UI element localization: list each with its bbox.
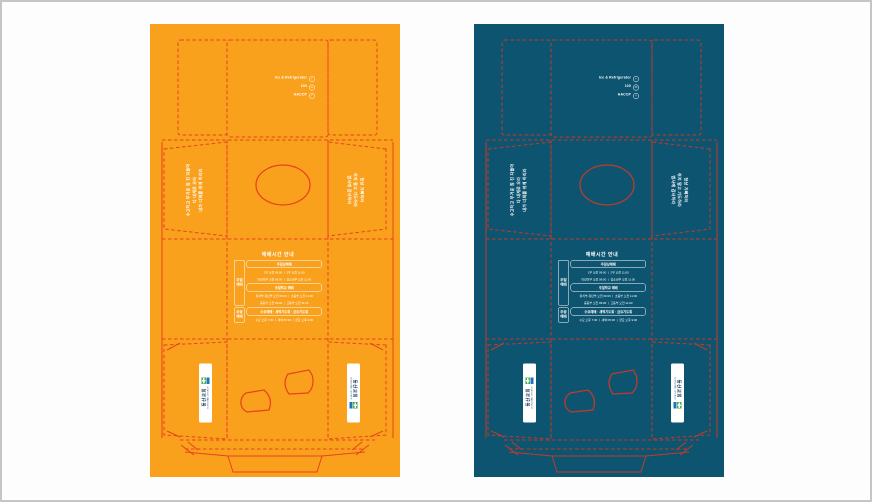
hatch-mark [167, 343, 180, 350]
logo-sub-text: DONGSAN CHURCH [207, 386, 209, 408]
note-line: Ice & Refrigerator+ [275, 76, 315, 82]
glue-flap-notch [680, 445, 693, 455]
weekday-worship-group: 주중예배 수요예배 · 새벽기도회 · 금요기도회 수요 오후 7:30 ㅣ 새… [558, 308, 646, 323]
group-label: 주중예배 [558, 308, 569, 323]
row-header: 주일학교 예배 [571, 284, 647, 292]
church-logo-right: 동산교회DONGSAN CHURCH [671, 363, 685, 423]
note-line: Ice & Refrigerator+ [599, 76, 639, 82]
logo-main-text: 동산교회 [676, 379, 681, 398]
row-header: 수요예배 · 새벽기도회 · 금요기도회 [247, 308, 323, 316]
row-line: 중등부 오전 09:00 ㅣ 고등부 오전 11:00 [571, 300, 647, 306]
side-verse-right: 항상 기뻐하라쉬지 말고 기도하라범사에 감사하라 [318, 148, 393, 233]
sunday-worship-group: 주일예배 주일낮예배 1부 오전 09:00 ㅣ 2부 오전 11:00 어린이… [558, 260, 646, 306]
thumb-cutout-left [565, 390, 595, 412]
row-line: 중등부 오전 09:00 ㅣ 고등부 오전 11:00 [247, 300, 323, 306]
oval-window-cutline [256, 165, 310, 205]
row-line: 어린이부 오전 09:00 ㅣ 청소년부 오전 11:00 [571, 277, 647, 283]
side-verse-right: 항상 기뻐하라쉬지 말고 기도하라범사에 감사하라 [642, 148, 717, 233]
row-line: 어린이부 오전 09:00 ㅣ 청소년부 오전 11:00 [247, 277, 323, 283]
logo-sub-text: DONGSAN CHURCH [674, 378, 676, 400]
thumb-cutout-left [241, 390, 271, 412]
note-line: HACCP✓ [599, 93, 639, 99]
tuck-tab-outline [228, 456, 322, 472]
hatch-mark [370, 343, 383, 350]
weekday-worship-group: 주중예배 수요예배 · 새벽기도회 · 금요기도회 수요 오후 7:30 ㅣ 새… [234, 308, 322, 323]
table-title: 예배시간 안내 [558, 250, 646, 258]
cert-circle-icon: + [633, 76, 639, 82]
church-cross-icon [349, 402, 357, 409]
row-header: 주일낮예배 [247, 260, 323, 268]
group-label: 주일예배 [234, 260, 245, 306]
row-line: 유치부·유년부 오전 09:00 ㅣ 초등부 오전 11:00 [571, 293, 647, 299]
note-line: 100% [275, 85, 315, 91]
cert-circle-icon: % [633, 85, 639, 91]
table-title: 예배시간 안내 [234, 250, 322, 258]
hatch-mark [491, 431, 504, 437]
row-header: 수요예배 · 새벽기도회 · 금요기도회 [571, 308, 647, 316]
glue-flap-notch [505, 445, 518, 455]
hatch-mark [694, 343, 707, 350]
logo-main-text: 동산교회 [352, 379, 357, 398]
cert-circle-icon: % [309, 85, 315, 91]
bottom-side-flap-outline [164, 342, 227, 439]
thumb-cutout-right [285, 370, 313, 394]
side-verse-left: 수고하고 무거운 짐 진 자들아다 내게로 오라내가 너희를 쉬게 하리라 [158, 148, 233, 233]
group-label: 주일예배 [558, 260, 569, 306]
top-left-flap-outline [502, 40, 551, 135]
proof-sheet: Ice & Refrigerator+ 100% HACCP✓ 수고하고 무거운… [2, 2, 870, 500]
dieline-panel-orange: Ice & Refrigerator+ 100% HACCP✓ 수고하고 무거운… [150, 24, 400, 477]
hatch-mark [370, 431, 383, 437]
logo-sub-text: DONGSAN CHURCH [531, 386, 533, 408]
cert-circle-icon: + [309, 76, 315, 82]
row-line: 1부 오전 09:00 ㅣ 2부 오전 11:00 [247, 270, 323, 276]
glue-flap-notch [181, 445, 194, 455]
note-line: 100% [599, 85, 639, 91]
church-logo-left: 동산교회DONGSAN CHURCH [523, 363, 537, 423]
church-cross-icon [525, 378, 533, 385]
side-verse-left: 수고하고 무거운 짐 진 자들아다 내게로 오라내가 너희를 쉬게 하리라 [482, 148, 557, 233]
tuck-cut-line [185, 452, 365, 456]
row-line: 수요 오후 7:30 ㅣ 새벽 05:00 ㅣ 금요 오후 9:00 [247, 317, 323, 323]
logo-sub-text: DONGSAN CHURCH [350, 378, 352, 400]
worship-time-table: 예배시간 안내 주일예배 주일낮예배 1부 오전 09:00 ㅣ 2부 오전 1… [234, 250, 322, 323]
thumb-cutout-right [609, 370, 637, 394]
hatch-mark [167, 431, 180, 437]
cert-circle-icon: ✓ [309, 93, 315, 99]
hatch-mark [694, 431, 707, 437]
church-cross-icon [673, 402, 681, 409]
tuck-cut-line [509, 452, 689, 456]
oval-window-cutline [580, 165, 634, 205]
row-line: 수요 오후 7:30 ㅣ 새벽 05:00 ㅣ 금요 오후 9:00 [571, 317, 647, 323]
note-line: HACCP✓ [275, 93, 315, 99]
church-logo-left: 동산교회DONGSAN CHURCH [199, 363, 213, 423]
worship-time-table: 예배시간 안내 주일예배 주일낮예배 1부 오전 09:00 ㅣ 2부 오전 1… [558, 250, 646, 323]
church-cross-icon [201, 378, 209, 385]
top-right-flap-outline [652, 40, 701, 135]
top-left-flap-outline [178, 40, 227, 135]
certification-notes: Ice & Refrigerator+ 100% HACCP✓ [275, 76, 315, 102]
certification-notes: Ice & Refrigerator+ 100% HACCP✓ [599, 76, 639, 102]
row-line: 1부 오전 09:00 ㅣ 2부 오전 11:00 [571, 270, 647, 276]
row-header: 주일낮예배 [571, 260, 647, 268]
sunday-worship-group: 주일예배 주일낮예배 1부 오전 09:00 ㅣ 2부 오전 11:00 어린이… [234, 260, 322, 306]
dieline-panel-teal: Ice & Refrigerator+ 100% HACCP✓ 수고하고 무거운… [474, 24, 724, 477]
bottom-side-flap-outline [488, 342, 551, 439]
church-logo-right: 동산교회DONGSAN CHURCH [347, 363, 361, 423]
top-right-flap-outline [328, 40, 377, 135]
glue-flap-notch [356, 445, 369, 455]
row-header: 주일학교 예배 [247, 284, 323, 292]
row-line: 유치부·유년부 오전 09:00 ㅣ 초등부 오전 11:00 [247, 293, 323, 299]
hatch-mark [491, 343, 504, 350]
tuck-tab-outline [552, 456, 646, 472]
cert-circle-icon: ✓ [633, 93, 639, 99]
group-label: 주중예배 [234, 308, 245, 323]
